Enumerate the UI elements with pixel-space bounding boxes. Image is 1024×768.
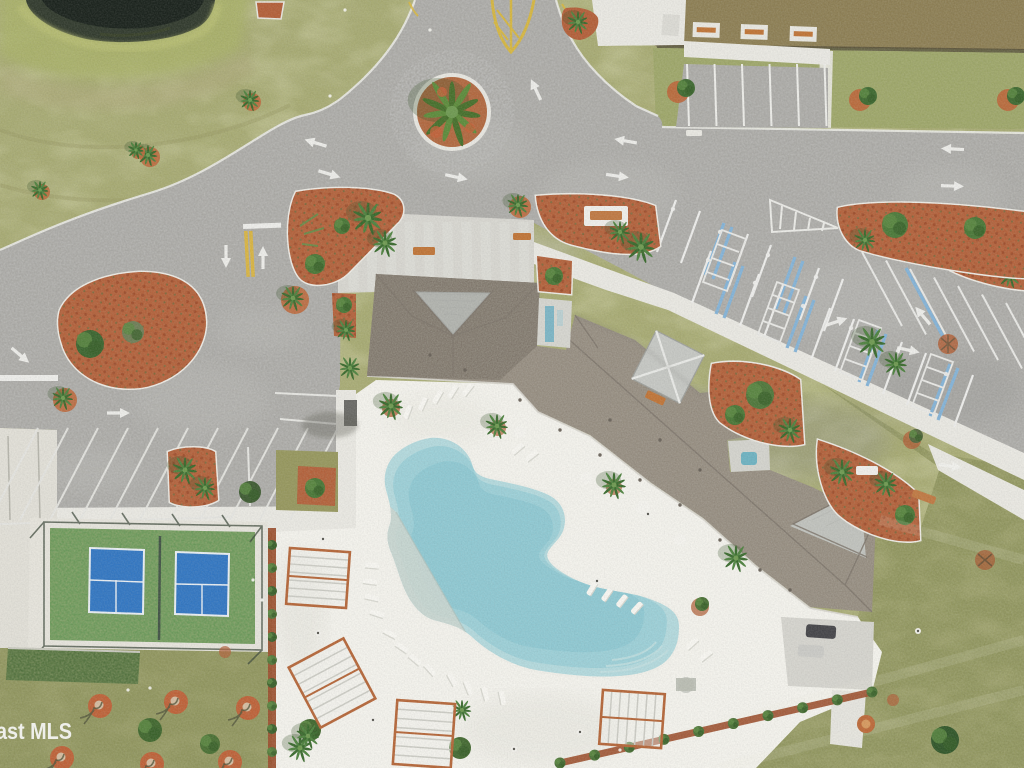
svg-text:ast MLS: ast MLS bbox=[0, 718, 72, 744]
